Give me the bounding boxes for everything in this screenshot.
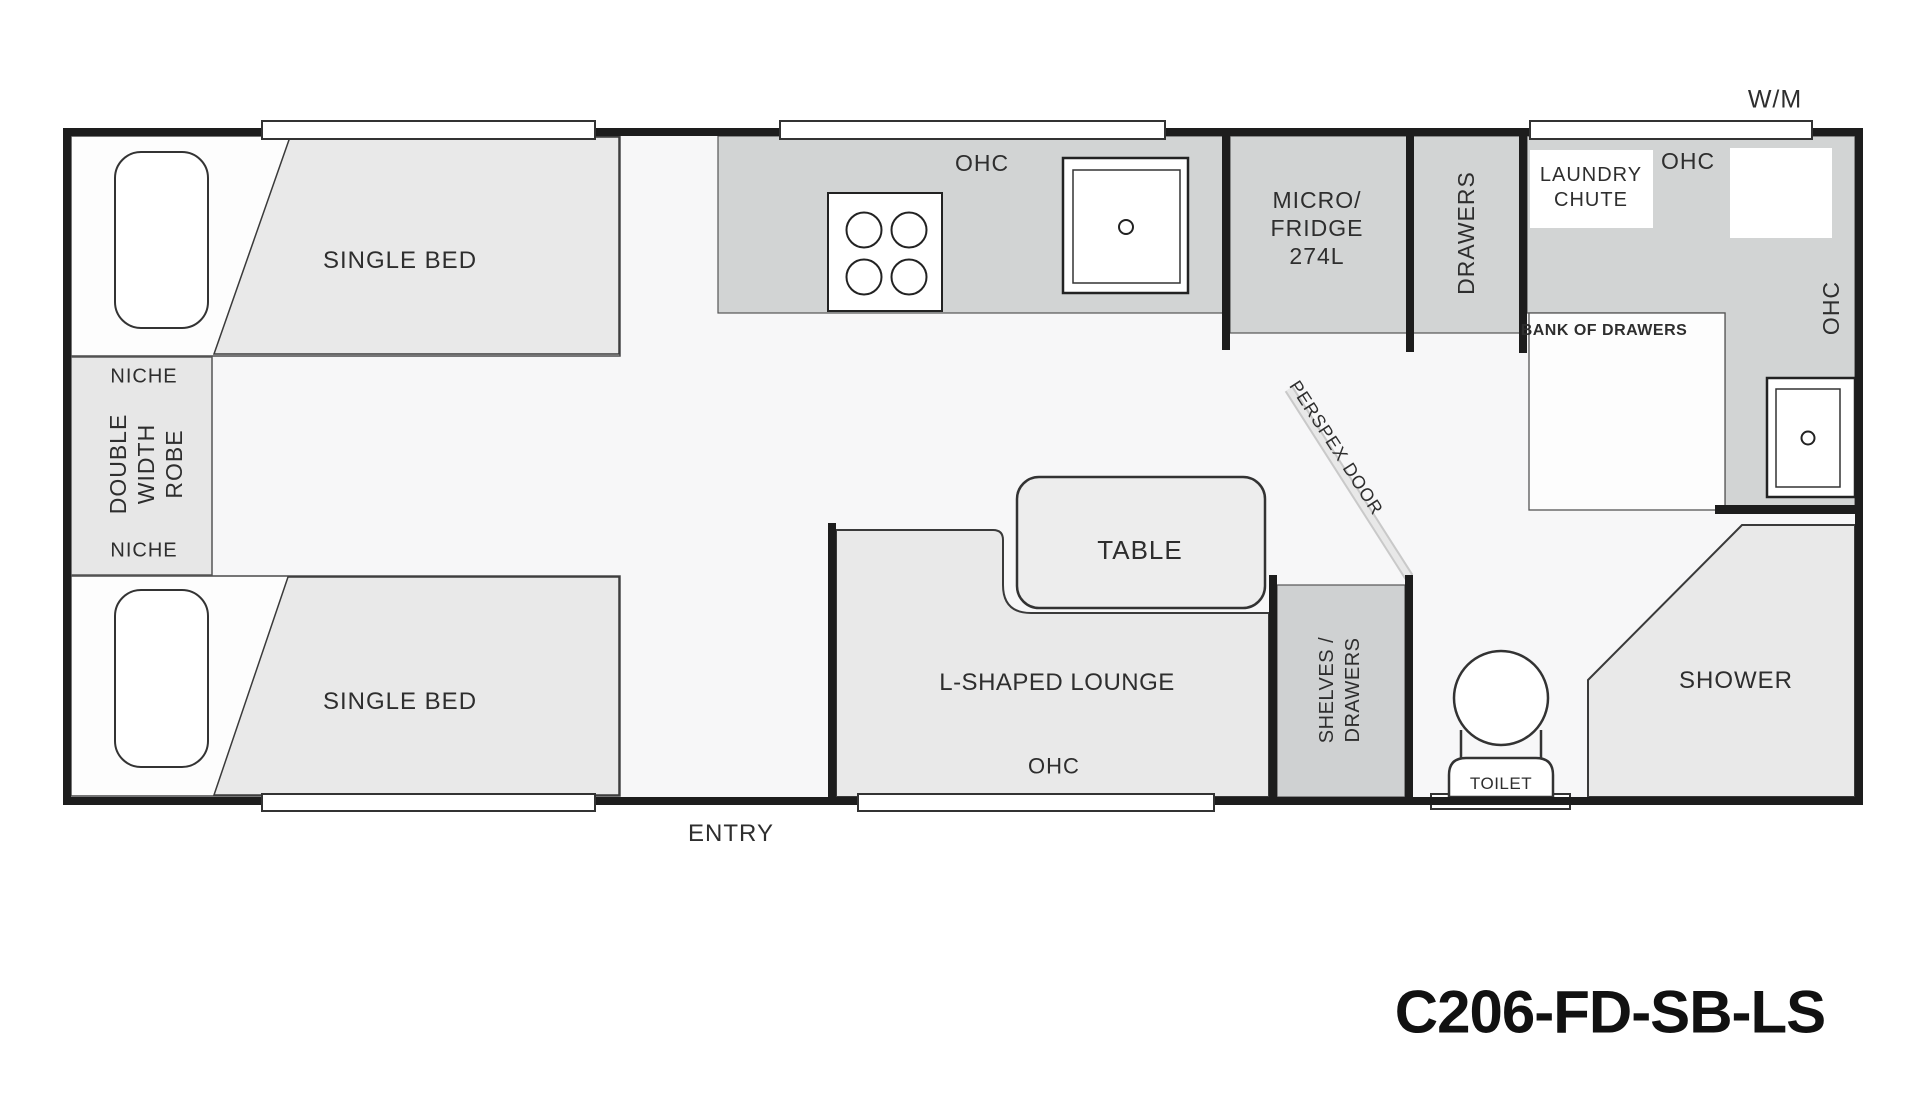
shelves-left-wall	[1269, 575, 1277, 797]
robe-label-line1: DOUBLE	[104, 414, 132, 515]
stove-icon	[828, 193, 942, 311]
toilet-label: TOILET	[1470, 774, 1532, 794]
window-lounge	[858, 794, 1214, 811]
robe-label-line3: ROBE	[160, 414, 188, 515]
kitchen-sink-icon	[1063, 158, 1188, 293]
fridge-drawers-divider-wall	[1406, 131, 1414, 352]
window-rear-top	[1530, 121, 1812, 139]
window-front-bottom	[262, 794, 595, 811]
laundry-chute-line2: CHUTE	[1540, 188, 1642, 213]
rear-ohc-side-label: OHC	[1818, 281, 1844, 335]
rear-ohc-top-label: OHC	[1661, 148, 1715, 174]
laundry-chute-label: LAUNDRY CHUTE	[1540, 163, 1642, 213]
bank-of-drawers-label: BANK OF DRAWERS	[1521, 322, 1688, 340]
niche-bottom-label: NICHE	[110, 540, 177, 563]
shelves-drawers-line1: SHELVES /	[1314, 637, 1340, 743]
pillow-top-icon	[115, 152, 208, 328]
niche-top-label: NICHE	[110, 366, 177, 389]
wall-left	[63, 128, 71, 805]
caravan-floorplan: W/M ENTRY SINGLE BED SINGLE BED NICHE NI…	[0, 0, 1920, 1097]
laundry-chute-line1: LAUNDRY	[1540, 163, 1642, 188]
shelves-right-wall	[1405, 575, 1413, 797]
table-label: TABLE	[1097, 536, 1182, 566]
robe-label-line2: WIDTH	[132, 414, 160, 515]
lounge-label: L-SHAPED LOUNGE	[939, 669, 1175, 697]
kitchen-drawers-label: DRAWERS	[1453, 171, 1479, 295]
kitchen-ohc-label: OHC	[955, 150, 1009, 176]
shelves-drawers-label: SHELVES / DRAWERS	[1314, 637, 1366, 743]
kitchen-end-wall	[1519, 131, 1527, 353]
lounge-end-wall	[828, 523, 836, 797]
robe-label: DOUBLE WIDTH ROBE	[104, 414, 188, 515]
micro-fridge-label: MICRO/ FRIDGE 274L	[1271, 186, 1364, 270]
micro-fridge-line2: FRIDGE	[1271, 214, 1364, 242]
shower-label: SHOWER	[1679, 667, 1793, 695]
model-code-label: C206-FD-SB-LS	[1395, 978, 1825, 1047]
wm-label: W/M	[1748, 86, 1802, 115]
entry-label: ENTRY	[688, 820, 774, 848]
micro-fridge-line3: 274L	[1271, 242, 1364, 270]
window-front-top	[262, 121, 595, 139]
window-kitchen	[780, 121, 1165, 139]
lounge-ohc-label: OHC	[1028, 753, 1080, 778]
bathroom-divider-wall	[1715, 505, 1855, 514]
fridge-left-wall	[1222, 131, 1230, 350]
pillow-bottom-icon	[115, 590, 208, 767]
wall-right	[1855, 128, 1863, 805]
washing-machine-icon	[1730, 148, 1832, 238]
micro-fridge-line1: MICRO/	[1271, 186, 1364, 214]
bathroom-sink-icon	[1767, 378, 1855, 497]
single-bed-top-label: SINGLE BED	[323, 247, 477, 275]
shelves-drawers-line2: DRAWERS	[1340, 637, 1366, 743]
bank-of-drawers-box	[1529, 313, 1725, 510]
single-bed-bottom-label: SINGLE BED	[323, 688, 477, 716]
